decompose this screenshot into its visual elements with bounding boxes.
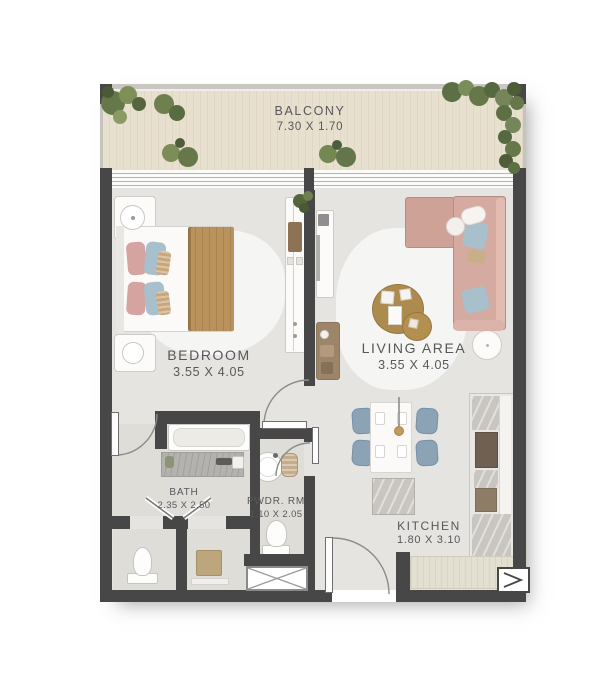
powder-room-name: PWDR. RM bbox=[247, 496, 305, 509]
vanity-faucet-icon bbox=[216, 458, 232, 465]
bathtub-inner bbox=[173, 428, 245, 447]
sliding-door-mullion bbox=[304, 168, 314, 190]
bath-door-leaf bbox=[111, 412, 119, 456]
service-shaft bbox=[246, 566, 308, 591]
coffee-book bbox=[388, 306, 402, 325]
vanity-sink bbox=[232, 456, 244, 469]
place-mat-4 bbox=[397, 445, 407, 458]
wardrobe-clothes bbox=[288, 222, 302, 252]
stall-post-left bbox=[112, 516, 130, 529]
wardrobe bbox=[285, 197, 305, 353]
kitchen-label: KITCHEN 1.80 X 3.10 bbox=[397, 519, 461, 548]
console-tray bbox=[320, 345, 334, 357]
living-area-label: LIVING AREA 3.55 X 4.05 bbox=[362, 340, 467, 373]
powder-sink-inner bbox=[258, 457, 278, 477]
powder-room-label: PWDR. RM 1.10 X 2.05 bbox=[247, 496, 305, 520]
exterior-wall-right bbox=[513, 168, 526, 602]
kitchen-name: KITCHEN bbox=[397, 519, 461, 534]
wardrobe-box-2 bbox=[296, 257, 303, 265]
powder-room-dims: 1.10 X 2.05 bbox=[247, 509, 305, 521]
cooktop-appliance bbox=[475, 432, 498, 468]
kitchen-island bbox=[372, 478, 415, 515]
bath-north-wall-post bbox=[155, 411, 167, 449]
hallway-door-leaf bbox=[262, 421, 307, 429]
powder-basket bbox=[281, 453, 298, 477]
bedroom-living-divider-wall bbox=[304, 190, 315, 386]
balcony-name: BALCONY bbox=[275, 104, 346, 120]
shower-seat bbox=[196, 550, 222, 576]
tv-screen bbox=[316, 235, 320, 281]
entrance-post bbox=[396, 552, 410, 602]
counter-cabinet-front bbox=[499, 396, 511, 514]
balcony-label: BALCONY 7.30 X 1.70 bbox=[275, 104, 346, 134]
balcony-post-left bbox=[100, 84, 112, 104]
entrance-door-leaf bbox=[325, 537, 333, 593]
powder-faucet-icon bbox=[273, 453, 278, 458]
exterior-wall-bottom-left bbox=[100, 590, 332, 602]
bedroom-dims: 3.55 X 4.05 bbox=[167, 365, 251, 381]
counter-marble-mid bbox=[474, 470, 498, 488]
vanity-plant-icon bbox=[165, 456, 174, 468]
coffee-deco bbox=[408, 318, 419, 329]
wardrobe-box-1 bbox=[287, 257, 294, 265]
bed-headboard bbox=[116, 226, 124, 332]
bedroom-label: BEDROOM 3.55 X 4.05 bbox=[167, 347, 251, 380]
lamp-bottom-icon bbox=[122, 342, 144, 364]
living-area-name: LIVING AREA bbox=[362, 340, 467, 358]
console-cup bbox=[320, 330, 329, 339]
balcony-dims: 7.30 X 1.70 bbox=[275, 120, 346, 134]
dining-chair-4 bbox=[415, 439, 439, 466]
coffee-tray-2 bbox=[399, 288, 411, 300]
tv-device bbox=[318, 214, 329, 226]
kitchen-sink-block bbox=[475, 488, 497, 512]
powder-door-leaf bbox=[312, 427, 319, 464]
bath-dims: 2.35 X 2.50 bbox=[158, 500, 211, 512]
stall-divider-wall bbox=[176, 516, 187, 590]
bed-blanket bbox=[188, 227, 234, 331]
counter-marble-bottom bbox=[472, 514, 511, 556]
cushion-tan-2 bbox=[156, 290, 172, 315]
sofa-armrest bbox=[453, 320, 505, 331]
bedroom-name: BEDROOM bbox=[167, 347, 251, 365]
exterior-wall-left bbox=[100, 168, 112, 602]
wardrobe-knob-1 bbox=[293, 322, 297, 326]
wardrobe-knob-2 bbox=[293, 334, 297, 338]
lamp-top-dot bbox=[131, 216, 135, 220]
living-area-dims: 3.55 X 4.05 bbox=[362, 358, 467, 374]
place-mat-2 bbox=[397, 412, 407, 425]
powder-toilet-bowl bbox=[266, 520, 287, 547]
place-mat-3 bbox=[375, 445, 385, 458]
bath-label: BATH 2.35 X 2.50 bbox=[158, 487, 211, 511]
sofa-throw bbox=[467, 249, 486, 264]
sofa-backrest bbox=[496, 198, 505, 326]
duct-arrow-box bbox=[497, 567, 530, 593]
bath-north-wall bbox=[155, 411, 255, 424]
bath-name: BATH bbox=[158, 487, 211, 500]
console-deco bbox=[321, 362, 333, 374]
side-table-dot bbox=[486, 344, 489, 347]
balcony-post-right bbox=[514, 84, 526, 104]
balcony-top-rail bbox=[100, 84, 526, 91]
powder-south-wall bbox=[244, 554, 315, 566]
kitchen-dims: 1.80 X 3.10 bbox=[397, 534, 461, 548]
floor-plan-canvas: BALCONY 7.30 X 1.70 BEDROOM 3.55 X 4.05 … bbox=[0, 0, 612, 685]
place-mat-1 bbox=[375, 412, 385, 425]
shower-ledge bbox=[191, 578, 229, 585]
dining-chair-3 bbox=[415, 407, 439, 434]
toilet-bowl bbox=[133, 547, 152, 576]
coffee-tray-1 bbox=[380, 290, 394, 304]
